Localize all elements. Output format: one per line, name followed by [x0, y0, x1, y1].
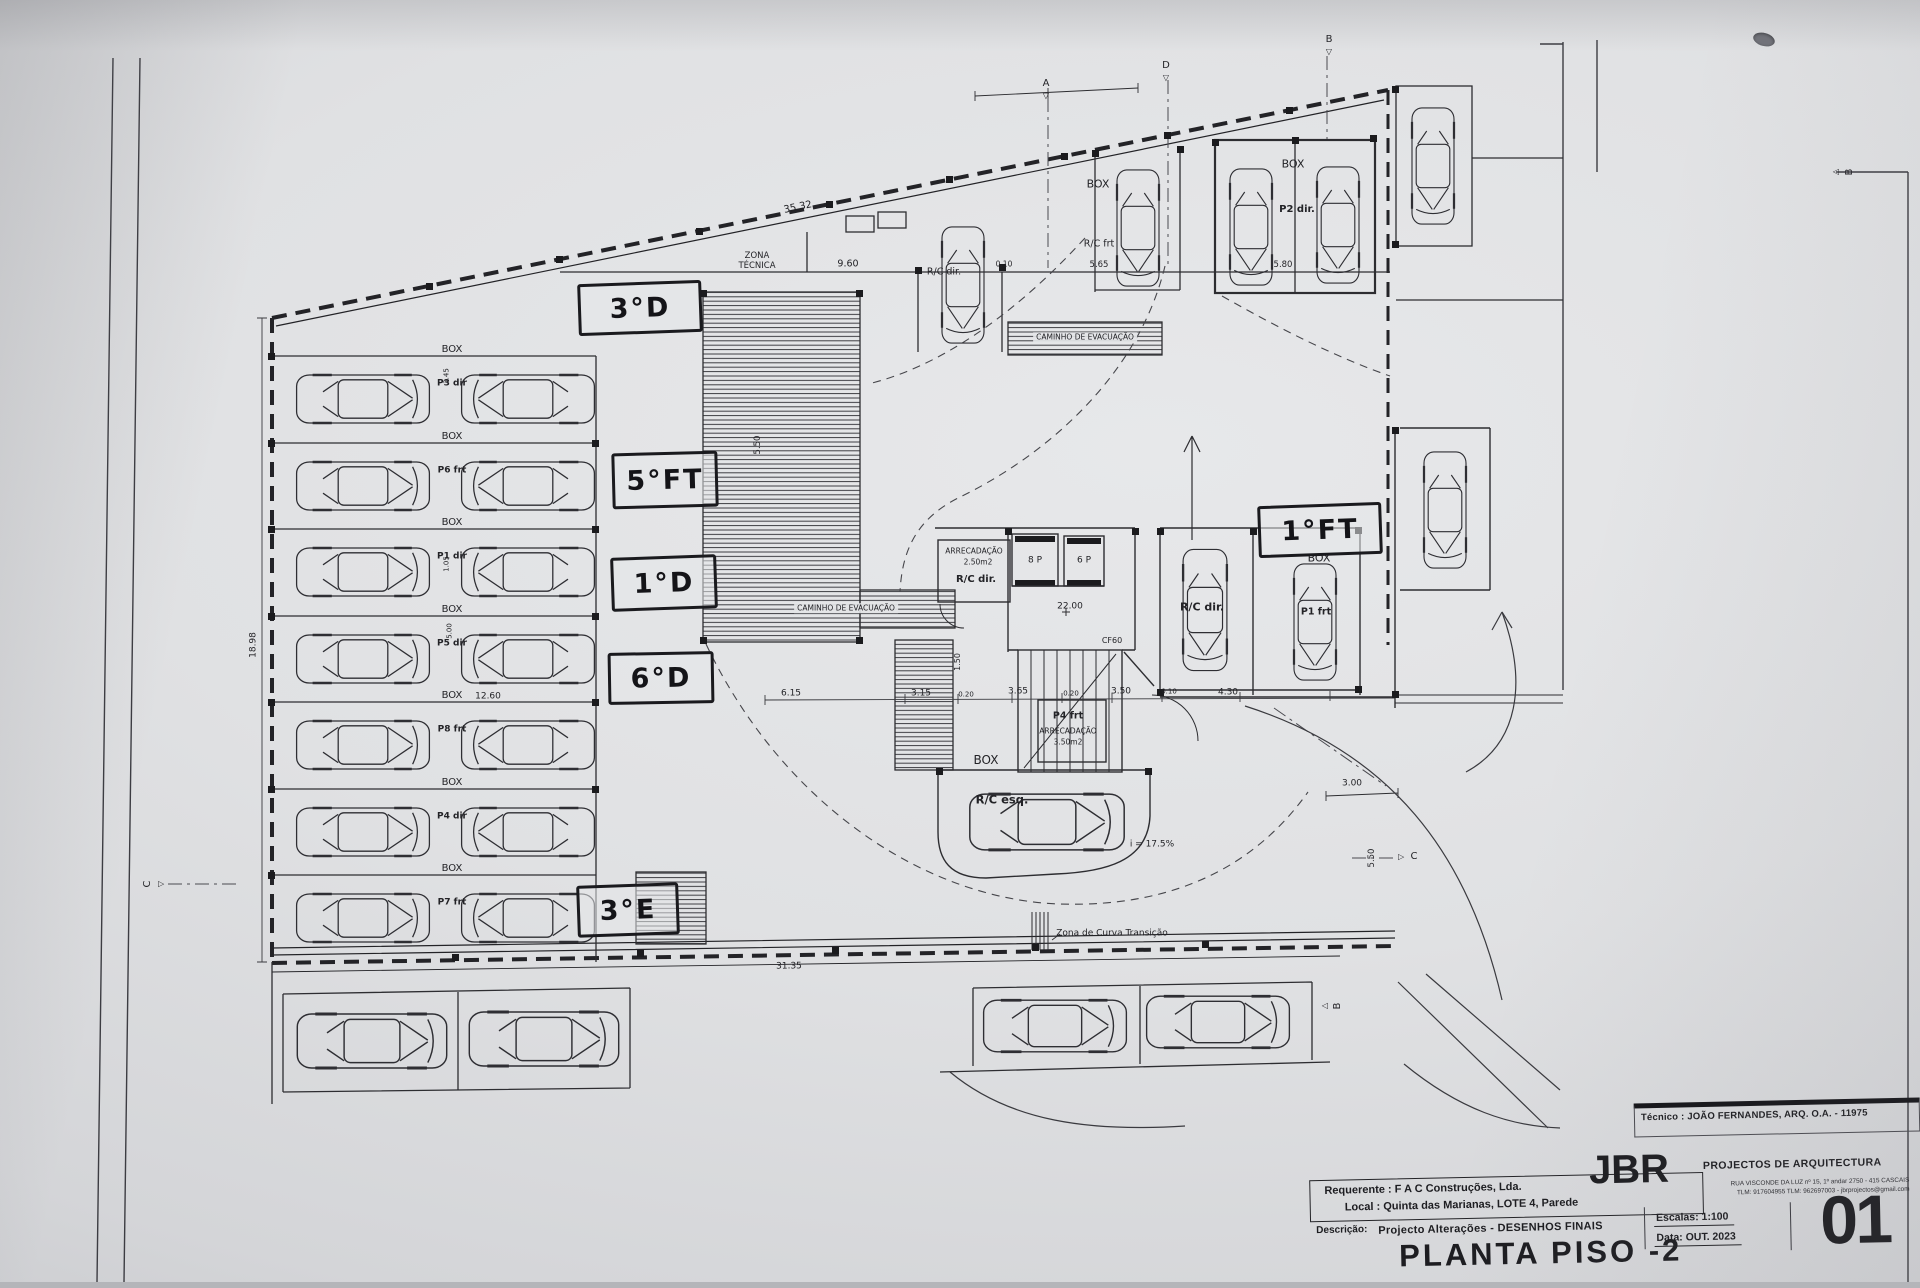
handwritten-3d: 3°D [577, 280, 703, 336]
stall-p4-frt: P4 frt [1053, 711, 1083, 721]
dim-0-20-b: 0.20 [1063, 691, 1079, 698]
left-parking-block [272, 356, 596, 962]
box-label-rc-frt: BOX [1087, 179, 1110, 190]
stall-rc-dir-car: R/C dir. [1180, 602, 1224, 613]
titleblock-tecnico: Técnico : JOÃO FERNANDES, ARQ. O.A. - 11… [1634, 1097, 1920, 1137]
stall-row-3: P1 dir [437, 553, 467, 562]
titleblock-requerente: Requerente : F A C Construções, Lda. [1324, 1181, 1521, 1197]
dim-3-00: 3.00 [1342, 780, 1362, 789]
caminho-evacuacao-left: CAMINHO DE EVACUAÇÃO [794, 603, 898, 613]
arrecadacao-1: ARRECADAÇÃO [945, 547, 1002, 555]
box-label-p2: BOX [1282, 159, 1305, 170]
section-marker-d: D [1162, 61, 1170, 71]
stall-row-1: P3 dir [437, 380, 467, 389]
section-marker-a: A [1043, 79, 1050, 89]
title-block: Técnico : JOÃO FERNANDES, ARQ. O.A. - 11… [1299, 1144, 1920, 1288]
stall-rc-dir-top: R/C dir. [927, 267, 961, 277]
box-row-4: BOX [442, 605, 463, 615]
titleblock-escala: Escalas: 1:100 [1654, 1210, 1735, 1227]
dim-18-98: 18.98 [250, 632, 259, 658]
dim-1-05: 1.05 [444, 556, 451, 572]
dim-0-10-b: 0.10 [1161, 689, 1177, 696]
section-marker-b-bottom-arrow: ◁ [1322, 1002, 1328, 1010]
stall-row-7: P7 frt [438, 899, 467, 908]
dim-5-50-right: 5.50 [1368, 849, 1377, 868]
dim-5-50-ramp: 5.50 [754, 436, 763, 455]
dim-3-45: 3.45 [444, 368, 451, 384]
dim-4-30: 4.30 [1218, 689, 1238, 698]
stall-rc-frt: R/C frt [1084, 239, 1114, 249]
arrecadacao-2: ARRECADAÇÃO [1039, 727, 1096, 735]
stall-p1-frt: P1 frt [1301, 607, 1331, 617]
arrecadacao-1-area: 2.50m2 [964, 558, 993, 566]
parked-cars [297, 108, 1466, 1068]
dim-5-00: 5.00 [447, 623, 454, 639]
arrecadacao-2-area: 3.50m2 [1054, 738, 1083, 746]
box-row-1: BOX [442, 345, 463, 355]
zona-tecnica-line1: ZONA [745, 252, 770, 261]
titleblock-local: Local : Quinta das Marianas, LOTE 4, Par… [1345, 1197, 1579, 1214]
section-marker-d-arrow: ◁ [1162, 75, 1170, 81]
box-label-rc-esq: BOX [974, 754, 999, 766]
elevator-6p: 6 P [1077, 557, 1091, 566]
stall-row-4: P5 dir [437, 640, 467, 649]
stall-rc-esq: R/C esq. [976, 794, 1029, 806]
section-marker-c-left: C [143, 881, 153, 888]
handwritten-5ft: 5°FT [611, 451, 718, 510]
section-marker-c-left-arrow: ◁ [158, 880, 164, 888]
sheet-number: 01 [1793, 1180, 1917, 1261]
handwritten-1d: 1°D [610, 554, 718, 612]
section-marker-b-top: B [1326, 35, 1333, 45]
titleblock-data: Data: OUT. 2023 [1654, 1230, 1742, 1247]
dim-0-20-a: 0.20 [958, 692, 974, 699]
dim-3-50: 3.50 [1111, 688, 1131, 697]
box-row-6: BOX [442, 778, 463, 788]
dim-31-35: 31.35 [776, 962, 802, 971]
handwritten-6d: 6°D [608, 651, 715, 705]
firm-logo: JBR [1589, 1147, 1670, 1194]
dim-0-10-top: 0.10 [996, 260, 1013, 268]
dim-1-50: 1.50 [954, 653, 962, 671]
stall-row-6: P4 dir [437, 813, 467, 822]
box-row-7: BOX [442, 864, 463, 874]
zona-tecnica-line2: TÉCNICA [738, 262, 775, 271]
titleblock-descricao-label: Descrição: [1316, 1224, 1367, 1236]
box-row-3: BOX [442, 518, 463, 528]
firm-tagline: PROJECTOS DE ARQUITECTURA [1703, 1156, 1882, 1172]
door-cf60: CF60 [1102, 637, 1122, 645]
caminho-evacuacao-top: CAMINHO DE EVACUAÇÃO [1033, 332, 1137, 342]
floor-plan-drawing [0, 0, 1920, 1282]
handwritten-1ft: 1°FT [1257, 502, 1383, 558]
stall-rc-dir-store: R/C dir. [956, 575, 996, 585]
box-row-5: BOX [442, 691, 463, 701]
stall-row-5: P8 frt [438, 726, 467, 735]
section-marker-b-bottom: B [1333, 1003, 1343, 1010]
dim-5-65: 5.65 [1090, 261, 1109, 270]
ramp-slope: i = 17.5% [1130, 841, 1174, 850]
ramp-hatching [636, 292, 1162, 950]
stall-p2-dir: P2 dir. [1279, 205, 1315, 215]
section-marker-b-right: B [1845, 169, 1855, 176]
section-marker-c-right-arrow: ◁ [1398, 853, 1404, 861]
section-marker-a-arrow: ◁ [1042, 93, 1050, 99]
elevator-8p: 8 P [1028, 557, 1042, 566]
section-marker-b-right-arrow: ◁ [1833, 168, 1839, 176]
level-marker: 22.00 [1057, 603, 1083, 612]
titleblock-divider [1790, 1202, 1792, 1250]
dim-3-65: 3.65 [1008, 688, 1028, 697]
zona-curva-transicao: Zona de Curva Transição [1056, 930, 1168, 939]
drawing-sheet: ZONATÉCNICA35.329.600.105.655.80BOXR/C f… [0, 0, 1920, 1282]
dim-9-60: 9.60 [837, 259, 858, 269]
sheet-frame [97, 40, 1908, 1282]
dim-3-15: 3.15 [911, 690, 931, 699]
handwritten-3e: 3°E [576, 882, 680, 938]
dim-12-60: 12.60 [475, 693, 501, 702]
box-row-2: BOX [442, 432, 463, 442]
bottom-parking [272, 962, 1330, 1104]
stall-row-2: P6 frt [438, 467, 467, 476]
dim-6-15: 6.15 [781, 690, 801, 699]
dim-5-80: 5.80 [1274, 261, 1293, 270]
section-marker-b-top-arrow: ◁ [1325, 49, 1333, 55]
section-marker-c-right: C [1411, 852, 1418, 862]
